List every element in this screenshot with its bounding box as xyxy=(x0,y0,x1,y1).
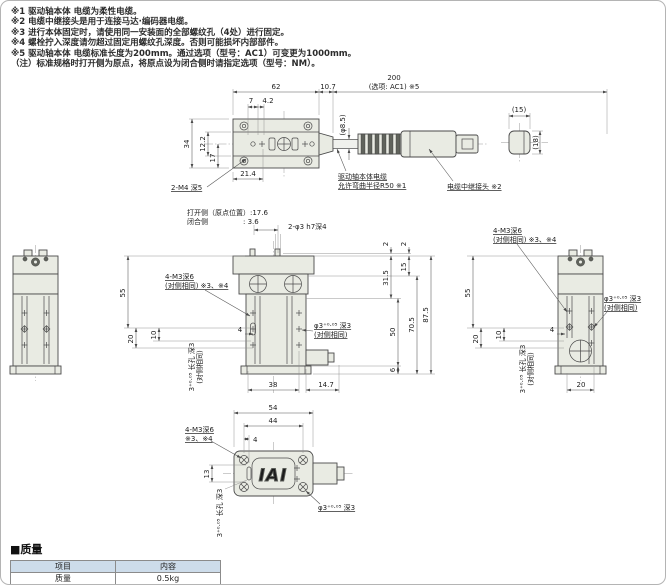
open-side-label: 打开侧（原点位置）:17.6 xyxy=(187,208,268,217)
side-view-right: 55 20 10 4 3⁺⁰·⁰⁵ 长孔 深3 (对侧相同) 4-M3深6 (对… xyxy=(464,226,641,393)
technical-drawing: 62 10.7 200 (选项: AC1) ※5 7 4.2 34 12.2 1… xyxy=(1,1,666,585)
cable-connector xyxy=(401,131,456,157)
tap-label-4-m3: 4-M3深6 xyxy=(165,272,194,281)
drawing-page: ※1 驱动轴本体 电缆为柔性电缆。 ※2 电缆中继接头是用于连接马达·编码器电缆… xyxy=(0,0,666,585)
dim-200-option: (选项: AC1) ※5 xyxy=(369,82,420,91)
dim-cable-dia: (φ8.5) xyxy=(339,114,347,135)
dim-conn-w: (15) xyxy=(512,106,527,114)
dim-13: 13 xyxy=(203,470,211,479)
tap-label-4-m3-note: ※3、※4 xyxy=(185,435,213,443)
dim-6: 6 xyxy=(389,367,397,372)
dim-20: 20 xyxy=(472,335,480,344)
table-row: 质量 0.5kg xyxy=(11,573,221,585)
cable-label-1: 驱动轴本体电缆 xyxy=(338,172,387,181)
connector-label: 电缆中继接头 ※2 xyxy=(447,182,502,191)
cable-boss xyxy=(313,463,337,484)
tap-label-2-m4: 2-M4 深5 xyxy=(171,183,202,192)
dim-70-5: 70.5 xyxy=(408,317,416,333)
dim-10: 10 xyxy=(495,331,503,340)
connector-end-view: (15) (18) xyxy=(501,106,548,162)
dim-7: 7 xyxy=(249,97,253,105)
mass-table: 项目 内容 质量 0.5kg xyxy=(10,560,221,585)
dim-conn-h: (18) xyxy=(532,135,540,150)
dim-87-5: 87.5 xyxy=(422,307,430,323)
cable-label-2: 允许弯曲半径R50 ※1 xyxy=(338,181,406,190)
dim-20-bottom: 20 xyxy=(577,381,586,389)
mass-heading: ■质量 xyxy=(10,541,221,557)
cable-neck xyxy=(319,133,333,155)
dim-4-2: 4.2 xyxy=(262,97,273,105)
dim-62: 62 xyxy=(272,83,281,91)
plan-view: 62 10.7 200 (选项: AC1) ※5 7 4.2 34 12.2 1… xyxy=(171,74,607,192)
hole-label: φ3⁺⁰·⁰⁵ 深3 xyxy=(314,321,351,330)
dim-4: 4 xyxy=(253,436,258,444)
dim-10: 10 xyxy=(150,331,158,340)
tap-label-4-m3-note: (对侧相同) ※3、※4 xyxy=(493,235,557,244)
dim-2b: 2 xyxy=(400,242,408,246)
hole-label-note: (对侧相同) xyxy=(604,303,638,312)
mass-row-value: 0.5kg xyxy=(116,573,221,585)
dim-50: 50 xyxy=(389,328,397,337)
dim-21-4: 21.4 xyxy=(240,170,256,178)
slot-label: 3⁺⁰·⁰⁵ 长孔 深3 xyxy=(215,489,224,538)
dim-4: 4 xyxy=(238,326,243,334)
dim-14-7: 14.7 xyxy=(318,381,334,389)
mass-col-content: 内容 xyxy=(116,561,221,573)
dim-4: 4 xyxy=(550,326,555,334)
dim-12-2: 12.2 xyxy=(199,136,207,152)
hole-label: φ3⁺⁰·⁰⁵ 深3 xyxy=(318,503,355,512)
dim-44: 44 xyxy=(269,417,278,425)
tap-label-4-m3: 4-M3深6 xyxy=(185,425,214,434)
dim-55: 55 xyxy=(464,289,472,298)
slot-label: 3⁺⁰·⁰⁵ 长孔 深3 xyxy=(518,345,527,394)
pin-label: 2-φ3 h7深4 xyxy=(288,222,327,231)
dim-17: 17 xyxy=(209,154,217,163)
mass-col-item: 项目 xyxy=(11,561,116,573)
cable-boss xyxy=(306,350,328,365)
cable xyxy=(333,140,358,149)
front-view: 打开侧（原点位置）:17.6 闭合侧 : 3.6 2-φ3 h7深4 55 20… xyxy=(119,208,435,393)
tap-label-4-m3-note: (对侧相同) ※3、※4 xyxy=(165,281,229,290)
hole-label-note: (对侧相同) xyxy=(314,330,348,339)
slot-label-note: (对侧相同) xyxy=(195,350,204,384)
dim-54: 54 xyxy=(269,404,278,412)
dim-2: 2 xyxy=(382,242,390,246)
iai-logo: IAI xyxy=(259,466,288,486)
dim-20: 20 xyxy=(127,335,135,344)
mass-section: ■质量 项目 内容 质量 0.5kg xyxy=(10,541,221,585)
tap-label-4-m3: 4-M3深6 xyxy=(493,226,522,235)
dim-38: 38 xyxy=(269,381,278,389)
close-side-label: 闭合侧 : 3.6 xyxy=(187,217,259,226)
slot-label-note: (对侧相同) xyxy=(526,352,535,386)
dim-15: 15 xyxy=(400,263,408,272)
dim-31-5: 31.5 xyxy=(382,270,390,286)
dim-10-7: 10.7 xyxy=(320,83,336,91)
side-view-left xyxy=(10,245,61,381)
dim-55: 55 xyxy=(119,289,127,298)
dim-34: 34 xyxy=(183,139,191,148)
hole-label: φ3⁺⁰·⁰⁵ 深3 xyxy=(604,294,641,303)
bottom-view: IAI 54 44 4 13 4-M3深6 ※3、※4 3⁺⁰· xyxy=(185,404,355,537)
dim-200: 200 xyxy=(387,74,400,82)
slot-label: 3⁺⁰·⁰⁵ 长孔 深3 xyxy=(187,343,196,392)
mass-row-label: 质量 xyxy=(11,573,116,585)
